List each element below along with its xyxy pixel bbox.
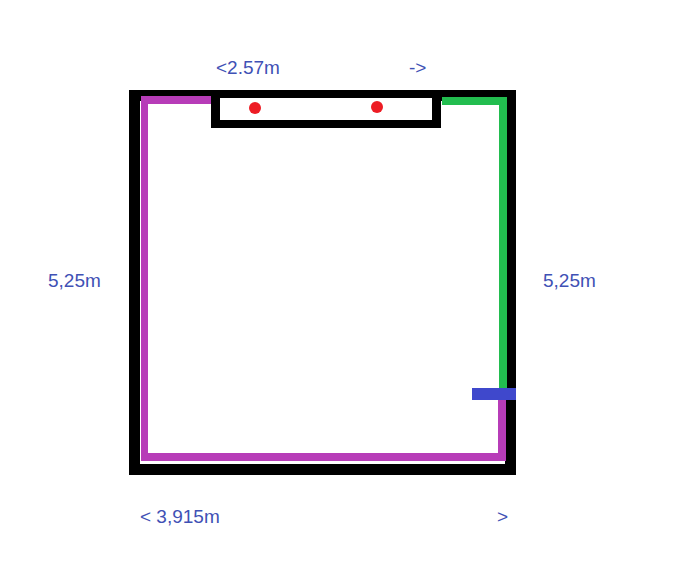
bottom-wall-length-label: < 3,915m bbox=[140, 506, 220, 528]
wall-line-green-right bbox=[499, 97, 507, 389]
room-outline bbox=[129, 90, 516, 475]
wall-line-magenta-top bbox=[143, 96, 211, 104]
door-marker-blue bbox=[472, 388, 516, 400]
window-opening bbox=[220, 98, 432, 120]
window-direction-arrow: -> bbox=[409, 57, 426, 79]
window-width-label: <2.57m bbox=[216, 57, 280, 79]
wall-line-magenta-right bbox=[498, 398, 506, 461]
window-bay bbox=[211, 90, 441, 128]
wall-line-magenta-left bbox=[141, 96, 148, 461]
floor-plan-canvas: <2.57m -> 5,25m 5,25m < 3,915m > bbox=[0, 0, 696, 564]
red-dot-marker bbox=[371, 101, 383, 113]
wall-line-magenta-bottom bbox=[141, 453, 506, 461]
right-wall-length-label: 5,25m bbox=[543, 270, 596, 292]
red-dot-marker bbox=[249, 102, 261, 114]
bottom-direction-arrow: > bbox=[497, 506, 508, 528]
left-wall-length-label: 5,25m bbox=[48, 270, 101, 292]
wall-line-green-top bbox=[442, 97, 506, 105]
